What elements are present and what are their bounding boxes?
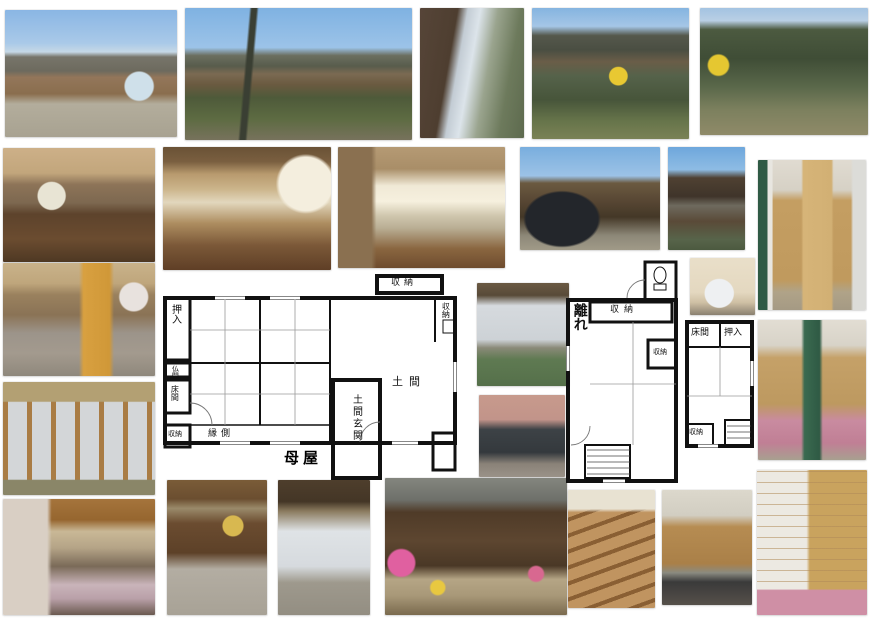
photo-staircase (568, 490, 655, 608)
photo-veranda-room (757, 470, 867, 615)
photo-laundry-room (477, 283, 569, 386)
main-plan-title: 母屋 (284, 452, 322, 468)
photo-dining-kitchen (338, 147, 505, 268)
room-label-hanare-storage-mid: 収納 (653, 349, 667, 356)
photo-dining-room (163, 147, 331, 270)
photo-bedroom (3, 499, 155, 615)
hanare-floor-plan: 離れ 収納 収納 床間 押入 収納 (563, 256, 755, 484)
room-label-engawa: 縁側 (208, 429, 234, 438)
photo-futon-room (758, 320, 866, 460)
photo-poster-room (3, 263, 155, 376)
photo-tatami-shoji-room (3, 382, 155, 495)
photo-garden-trees (700, 8, 868, 135)
room-label-hanare-oshiire: 押入 (724, 328, 742, 337)
room-label-hanare-storage-top: 収納 (610, 305, 638, 314)
photo-side-path (420, 8, 524, 138)
room-label-oshiire: 押入 (169, 304, 180, 324)
photo-carport-exterior (520, 147, 660, 250)
room-label-hanare-tokonoma: 床間 (691, 328, 709, 337)
room-label-butsuma: 仏間 (171, 365, 178, 379)
photo-living-room (3, 148, 155, 262)
room-label-doma-genkan: 土間玄関 (350, 394, 361, 442)
photo-upstairs-office (662, 490, 752, 605)
photo-western-room-door (758, 160, 866, 310)
room-label-storage-right: 収納 (441, 302, 449, 318)
room-label-storage-top: 収納 (391, 278, 417, 287)
room-label-tokonoma: 床間 (170, 385, 178, 401)
photo-exterior-approach (5, 10, 177, 137)
photo-storehouse-exterior (668, 147, 745, 250)
room-label-storage-sw: 収納 (168, 431, 182, 438)
photo-bathroom (479, 395, 565, 477)
photo-exterior-garden-view (185, 8, 412, 140)
room-label-hanare-storage-bottom: 収納 (689, 429, 703, 436)
photo-shoji-entrance (278, 480, 370, 615)
room-label-doma: 土間 (392, 377, 426, 389)
main-floor-plan: 押入 仏間 床間 収納 縁側 土間玄関 土間 収納 収納 母屋 (160, 272, 460, 482)
photo-front-entrance-flowers (385, 478, 567, 615)
photo-collage-sheet: 押入 仏間 床間 収納 縁側 土間玄関 土間 収納 収納 母屋 (0, 0, 876, 619)
photo-doma-entrance (167, 480, 267, 615)
photo-garden-forsythia (532, 8, 689, 139)
hanare-plan-title: 離れ (571, 303, 586, 331)
hanare-floor-plan-drawing (563, 256, 755, 484)
